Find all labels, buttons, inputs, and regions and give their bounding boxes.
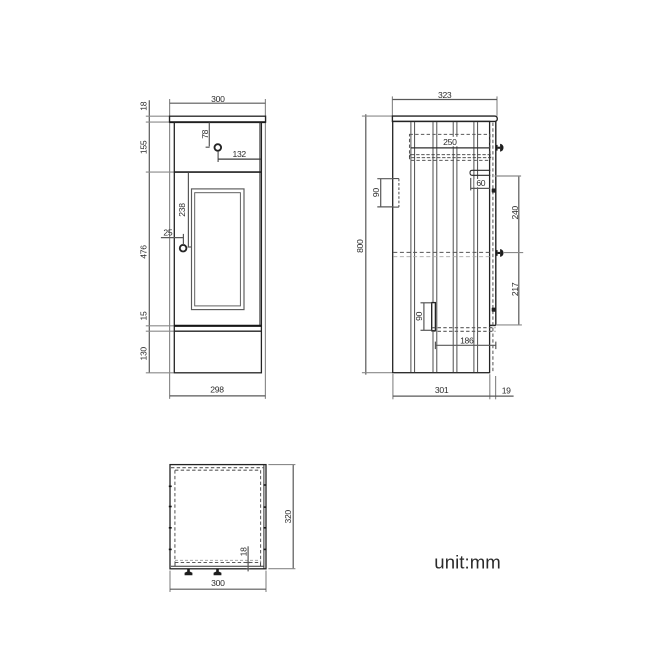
svg-text:300: 300 — [211, 94, 225, 104]
svg-text:298: 298 — [210, 385, 224, 395]
svg-text:78: 78 — [200, 129, 210, 138]
svg-text:320: 320 — [283, 510, 293, 524]
svg-text:301: 301 — [435, 385, 449, 395]
svg-text:476: 476 — [138, 245, 148, 259]
svg-text:60: 60 — [476, 178, 485, 188]
svg-text:250: 250 — [443, 137, 457, 147]
svg-text:132: 132 — [232, 149, 246, 159]
svg-text:90: 90 — [414, 311, 424, 320]
svg-text:18: 18 — [138, 101, 148, 110]
svg-text:25: 25 — [163, 227, 172, 237]
svg-text:217: 217 — [510, 282, 520, 296]
svg-text:unit:mm: unit:mm — [434, 552, 500, 573]
svg-text:800: 800 — [355, 239, 365, 253]
svg-text:18: 18 — [238, 547, 248, 556]
svg-text:15: 15 — [138, 311, 148, 320]
svg-text:240: 240 — [510, 206, 520, 220]
svg-text:19: 19 — [502, 385, 511, 395]
svg-text:323: 323 — [438, 90, 452, 100]
svg-text:130: 130 — [138, 347, 148, 361]
svg-text:90: 90 — [371, 188, 381, 197]
svg-text:300: 300 — [211, 578, 225, 588]
svg-text:238: 238 — [177, 203, 187, 217]
svg-text:186: 186 — [460, 335, 474, 345]
svg-text:155: 155 — [138, 140, 148, 154]
